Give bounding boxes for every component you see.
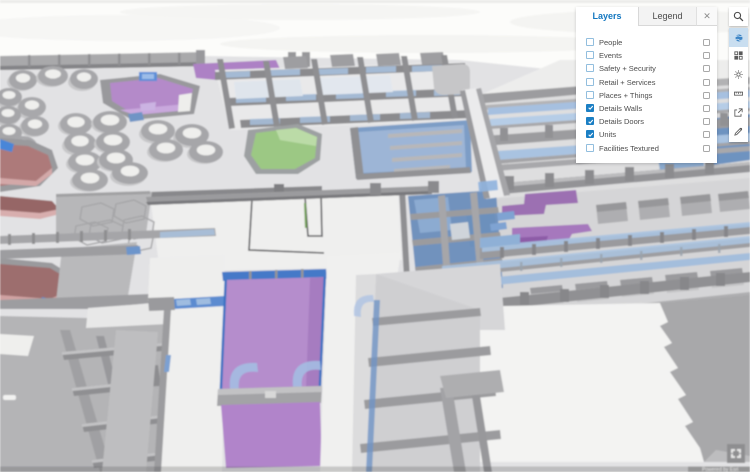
svg-text:Powered by Esri: Powered by Esri [702,467,738,472]
